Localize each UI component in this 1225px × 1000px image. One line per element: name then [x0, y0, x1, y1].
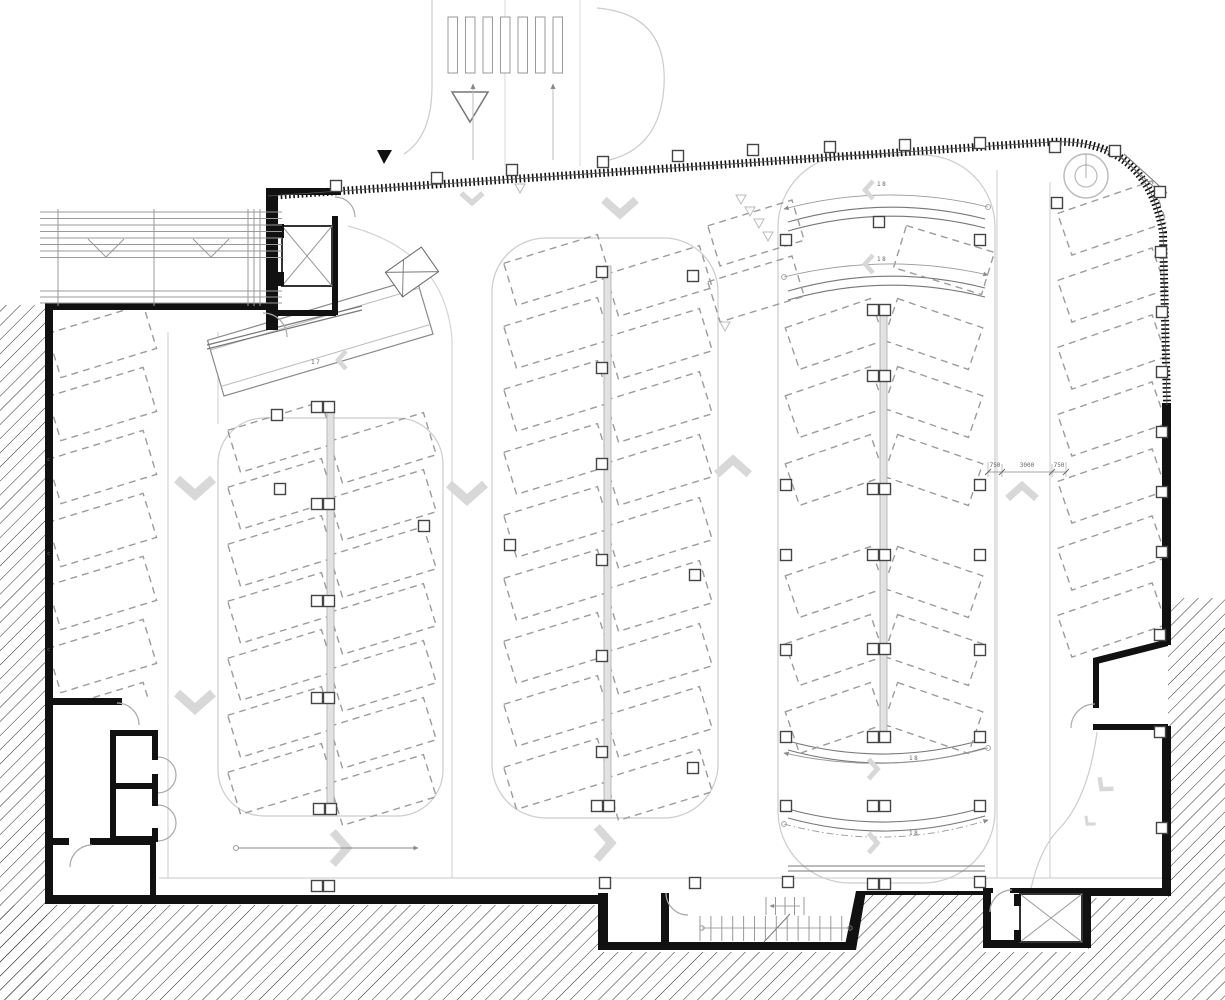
yield-triangle-icon: [452, 92, 488, 122]
drive-direction-chevron-down: [461, 193, 483, 203]
column: [748, 145, 759, 156]
column: [1155, 727, 1166, 738]
drive-direction-chevron-left: [865, 181, 873, 199]
column: [1157, 547, 1168, 558]
column: [975, 645, 986, 656]
parking-stall-group: [708, 200, 804, 322]
column-pair: [312, 693, 323, 704]
ramp-grade-label: 17: [311, 359, 321, 366]
parking-stall: [228, 516, 335, 587]
column-pair: [324, 693, 335, 704]
parking-stall-group: [504, 235, 611, 810]
column-pair: [880, 371, 891, 382]
column: [975, 877, 986, 888]
column: [783, 877, 794, 888]
parking-stall: [330, 698, 437, 769]
column: [825, 142, 836, 153]
parking-stall: [1058, 315, 1167, 389]
column-pair: [324, 881, 335, 892]
parking-stall: [504, 550, 611, 621]
crosswalk-stripe: [536, 17, 546, 73]
column: [1157, 367, 1168, 378]
spine-walls: [327, 266, 887, 813]
parking-stall: [504, 676, 611, 747]
parking-stall: [504, 613, 611, 684]
parking-stall-group: [883, 547, 982, 754]
slope-triangles: [515, 184, 773, 331]
column: [1157, 487, 1168, 498]
column: [331, 181, 342, 192]
parking-stall: [228, 573, 335, 644]
column-pair: [868, 550, 879, 561]
drive-direction-chevron-down: [177, 693, 213, 709]
parking-stall-group: [606, 246, 713, 821]
crosswalk-stripe: [501, 17, 511, 73]
column: [1157, 823, 1168, 834]
drive-direction-chevron-down: [449, 484, 485, 500]
column: [975, 732, 986, 743]
drive-direction-chevron-right: [869, 833, 878, 853]
column: [597, 459, 608, 470]
crosswalk-stripe: [466, 17, 476, 73]
column: [432, 173, 443, 184]
parking-stall: [504, 361, 611, 432]
parking-stall: [47, 619, 156, 692]
drive-direction-chevron-right: [597, 827, 611, 859]
column: [419, 521, 430, 532]
ramp-grade-label: 18: [877, 256, 887, 263]
column: [507, 165, 518, 176]
parking-stall: [228, 630, 335, 701]
drive-direction-chevron-right: [869, 759, 878, 779]
column-pair: [880, 550, 891, 561]
crosswalk-stripe: [448, 17, 458, 73]
column-pair: [880, 305, 891, 316]
column: [781, 645, 792, 656]
dimension-value: 750: [1054, 462, 1065, 469]
wall-marker: c: [47, 647, 50, 653]
column: [597, 651, 608, 662]
parking-stall: [330, 413, 437, 484]
column: [598, 157, 609, 168]
ramp-grade-label: 18: [877, 181, 887, 188]
column-pair: [312, 402, 323, 413]
parking-stall: [47, 430, 156, 503]
parking-stall-group: [1058, 181, 1167, 657]
entrance-ramp-treads: [40, 209, 282, 306]
column-pair: [868, 484, 879, 495]
column: [597, 363, 608, 374]
column: [597, 747, 608, 758]
dimension-value: 3000: [1020, 462, 1035, 469]
column: [1050, 142, 1061, 153]
column-pair: [312, 881, 323, 892]
parking-stall: [883, 547, 982, 618]
parking-stall: [47, 556, 156, 629]
column: [597, 555, 608, 566]
drive-direction-chevron-up: [717, 460, 749, 474]
floor-plan-canvas: 17 18 18 18 18 750 3000 750 c c c: [0, 0, 1225, 1000]
column: [272, 410, 283, 421]
parking-stall: [883, 367, 982, 438]
column: [597, 267, 608, 278]
column: [1157, 307, 1168, 318]
column: [781, 235, 792, 246]
column-pair: [324, 596, 335, 607]
column-pair: [324, 402, 335, 413]
column: [673, 151, 684, 162]
parking-stall: [47, 367, 156, 440]
column-pair: [604, 801, 615, 812]
parking-stall-group: [330, 413, 437, 826]
column: [874, 217, 885, 228]
column: [781, 801, 792, 812]
parking-stall: [1058, 449, 1167, 523]
column: [690, 570, 701, 581]
column: [781, 480, 792, 491]
column: [781, 732, 792, 743]
parking-stall: [330, 584, 437, 655]
internal-ramp: [207, 278, 433, 396]
column-pair: [324, 499, 335, 510]
column: [505, 540, 516, 551]
column: [1156, 247, 1167, 258]
column: [975, 550, 986, 561]
column-pair: [314, 804, 325, 815]
parking-stall: [606, 372, 713, 443]
column-pair: [880, 644, 891, 655]
column-pair: [880, 801, 891, 812]
column-pair: [868, 732, 879, 743]
parking-stall: [47, 304, 156, 377]
parking-stall-group: [785, 299, 884, 506]
column: [975, 138, 986, 149]
column-pair: [326, 804, 337, 815]
column: [1155, 187, 1166, 198]
column-pair: [592, 801, 603, 812]
parking-stall: [504, 424, 611, 495]
column: [690, 878, 701, 889]
entry-marker-icon: [377, 150, 392, 164]
ramp-direction-arrow: [784, 264, 988, 277]
parking-floor-plan: 17 18 18 18 18 750 3000 750 c c c: [0, 0, 1225, 1000]
column: [1155, 630, 1166, 641]
parking-stall: [883, 615, 982, 686]
ramp-grade-label: 18: [909, 755, 919, 762]
drive-direction-chevron-left: [1095, 777, 1114, 795]
drive-direction-chevron-down: [177, 479, 213, 495]
column-pair: [880, 484, 891, 495]
crosswalk-stripe: [553, 17, 563, 73]
parking-stall: [1058, 516, 1167, 590]
parking-stall: [330, 527, 437, 598]
column: [781, 550, 792, 561]
column: [975, 801, 986, 812]
parking-stall: [47, 493, 156, 566]
parking-stall-group: [228, 402, 335, 815]
parking-stall: [883, 683, 982, 754]
column: [688, 763, 699, 774]
dimension-labels: 750 3000 750: [990, 462, 1065, 469]
column-pair: [880, 879, 891, 890]
column-pair: [868, 371, 879, 382]
parking-stall: [606, 498, 713, 569]
parking-stall: [330, 641, 437, 712]
column: [275, 484, 286, 495]
crosswalk-stripe: [483, 17, 493, 73]
parking-stall: [606, 750, 713, 821]
parking-stall: [606, 687, 713, 758]
column: [900, 140, 911, 151]
column-pair: [868, 644, 879, 655]
parking-stall: [1058, 382, 1167, 456]
drive-direction-chevron-left: [1082, 816, 1095, 828]
column: [1110, 146, 1121, 157]
crosswalk-stripe: [518, 17, 528, 73]
column-pair: [312, 499, 323, 510]
wall-marker: c: [47, 551, 50, 557]
parking-stall-group: [47, 304, 156, 755]
parking-stall: [504, 739, 611, 810]
parking-stall: [504, 487, 611, 558]
column: [975, 235, 986, 246]
column: [975, 480, 986, 491]
parking-stall: [606, 624, 713, 695]
parking-stall: [606, 435, 713, 506]
drive-direction-chevron-down: [604, 200, 636, 214]
parking-stall: [708, 256, 804, 322]
column-pair: [868, 305, 879, 316]
dimension-value: 750: [990, 462, 1001, 469]
column: [688, 271, 699, 282]
column-pair: [868, 879, 879, 890]
column: [1157, 427, 1168, 438]
parking-stall: [606, 309, 713, 380]
column-pair: [880, 732, 891, 743]
column-pair: [868, 801, 879, 812]
parking-stall: [504, 298, 611, 369]
parking-stall-group: [883, 299, 982, 506]
drive-direction-chevron-up: [1008, 486, 1037, 499]
parking-stall: [1058, 248, 1167, 322]
wall-marker: c: [47, 457, 50, 463]
parking-stall: [883, 435, 982, 506]
parking-stall: [330, 755, 437, 826]
parking-stall: [883, 299, 982, 370]
ramp-grade-label: 18: [909, 830, 919, 837]
column-pair: [312, 596, 323, 607]
column: [1052, 198, 1063, 209]
column: [600, 878, 611, 889]
